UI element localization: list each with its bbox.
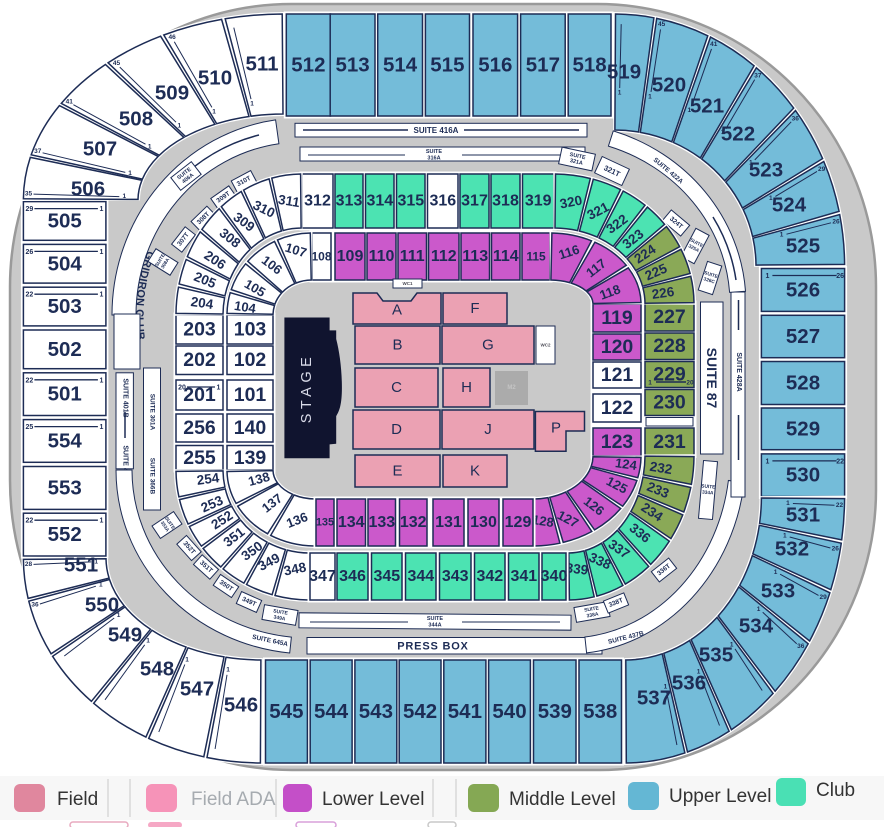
svg-text:20: 20 (178, 385, 186, 392)
svg-text:528: 528 (786, 372, 820, 395)
svg-text:139: 139 (234, 447, 267, 469)
svg-text:541: 541 (448, 700, 482, 723)
svg-text:B: B (392, 337, 402, 354)
svg-text:504: 504 (48, 252, 83, 275)
svg-text:26: 26 (832, 218, 840, 225)
svg-text:1: 1 (122, 193, 126, 200)
svg-text:SUITE: SUITE (426, 149, 443, 155)
svg-text:129: 129 (505, 514, 532, 531)
svg-text:41: 41 (66, 98, 74, 105)
svg-text:341: 341 (510, 568, 537, 585)
svg-text:37: 37 (34, 148, 42, 155)
svg-text:20: 20 (686, 380, 694, 387)
svg-text:130: 130 (470, 514, 497, 531)
svg-text:319: 319 (525, 193, 552, 210)
svg-text:347: 347 (309, 568, 336, 585)
svg-text:26: 26 (832, 546, 840, 553)
svg-text:121: 121 (601, 364, 634, 386)
svg-text:204: 204 (190, 294, 215, 312)
svg-text:A: A (392, 302, 402, 319)
svg-text:113: 113 (462, 248, 488, 265)
svg-text:109: 109 (337, 248, 364, 265)
svg-text:1: 1 (185, 657, 189, 664)
svg-text:133: 133 (368, 514, 395, 531)
svg-text:1: 1 (765, 458, 769, 465)
svg-text:131: 131 (435, 514, 462, 531)
svg-text:41: 41 (710, 41, 718, 48)
svg-text:228: 228 (653, 335, 686, 357)
svg-text:SUITE 87: SUITE 87 (704, 348, 720, 409)
svg-text:227: 227 (653, 306, 686, 328)
svg-text:314: 314 (366, 193, 393, 210)
svg-text:538: 538 (583, 700, 617, 723)
svg-text:501: 501 (48, 383, 82, 406)
svg-text:1: 1 (148, 143, 152, 150)
svg-text:542: 542 (403, 700, 437, 723)
svg-text:SUITE 401B: SUITE 401B (122, 378, 129, 417)
svg-text:535: 535 (699, 644, 733, 667)
svg-text:Field: Field (57, 789, 98, 810)
svg-text:SUITE 366B: SUITE 366B (149, 458, 156, 495)
svg-text:513: 513 (335, 54, 369, 77)
svg-text:1: 1 (212, 108, 216, 115)
svg-text:Field ADA: Field ADA (191, 789, 276, 810)
svg-text:545: 545 (269, 700, 303, 723)
svg-text:37: 37 (754, 72, 762, 79)
svg-text:344: 344 (407, 568, 434, 585)
svg-text:122: 122 (601, 397, 634, 419)
svg-text:112: 112 (431, 248, 457, 265)
svg-text:SUITE 301A: SUITE 301A (149, 394, 156, 431)
svg-text:519: 519 (607, 61, 641, 84)
svg-text:1: 1 (177, 123, 181, 130)
svg-text:1: 1 (99, 518, 103, 525)
svg-text:29: 29 (26, 206, 34, 213)
svg-text:G: G (482, 337, 494, 354)
svg-text:29: 29 (818, 166, 826, 173)
svg-text:530: 530 (786, 464, 820, 487)
svg-text:316A: 316A (427, 156, 440, 162)
svg-text:203: 203 (183, 319, 216, 341)
svg-text:1: 1 (783, 533, 787, 540)
svg-text:1: 1 (648, 93, 652, 100)
svg-text:25: 25 (26, 424, 34, 431)
svg-text:36: 36 (31, 602, 39, 609)
svg-text:312: 312 (304, 193, 331, 210)
svg-text:514: 514 (383, 54, 418, 77)
svg-text:26: 26 (836, 273, 844, 280)
svg-text:523: 523 (749, 159, 783, 182)
svg-text:1: 1 (721, 129, 725, 136)
svg-text:1: 1 (687, 107, 691, 114)
svg-text:1: 1 (664, 683, 668, 690)
svg-text:518: 518 (572, 54, 606, 77)
svg-text:529: 529 (786, 417, 820, 440)
svg-text:29: 29 (819, 594, 827, 601)
svg-text:340: 340 (541, 568, 568, 585)
svg-text:22: 22 (26, 292, 34, 299)
svg-text:M2: M2 (507, 385, 516, 391)
svg-text:548: 548 (140, 658, 174, 681)
svg-text:543: 543 (359, 700, 393, 723)
svg-text:111: 111 (400, 248, 425, 265)
svg-text:342: 342 (476, 568, 503, 585)
svg-text:135: 135 (316, 517, 334, 529)
svg-text:E: E (392, 463, 402, 480)
svg-text:1: 1 (765, 273, 769, 280)
svg-text:1: 1 (697, 668, 701, 675)
svg-text:533: 533 (761, 580, 795, 603)
svg-text:35: 35 (25, 191, 33, 198)
svg-text:1: 1 (128, 170, 132, 177)
svg-text:345: 345 (373, 568, 400, 585)
svg-text:1: 1 (648, 380, 652, 387)
svg-text:36: 36 (797, 643, 805, 650)
svg-text:1: 1 (757, 606, 761, 613)
svg-text:1: 1 (774, 569, 778, 576)
svg-text:1: 1 (769, 195, 773, 202)
svg-text:WC2: WC2 (541, 343, 551, 348)
svg-text:SUITE 416A: SUITE 416A (414, 126, 459, 135)
svg-text:108: 108 (311, 250, 331, 264)
svg-text:F: F (470, 300, 479, 317)
svg-text:26: 26 (26, 249, 34, 256)
svg-text:521: 521 (690, 95, 724, 118)
svg-text:46: 46 (168, 34, 176, 41)
svg-text:119: 119 (601, 307, 633, 329)
svg-text:526: 526 (786, 278, 820, 301)
svg-text:WC1: WC1 (403, 281, 413, 286)
svg-text:1: 1 (780, 232, 784, 239)
svg-text:Middle Level: Middle Level (509, 789, 616, 810)
svg-text:507: 507 (83, 138, 117, 161)
svg-text:1: 1 (117, 612, 121, 619)
svg-text:255: 255 (183, 447, 216, 469)
svg-text:508: 508 (119, 108, 153, 131)
svg-text:552: 552 (48, 523, 82, 546)
svg-text:346: 346 (339, 568, 366, 585)
svg-text:202: 202 (183, 349, 216, 371)
svg-text:511: 511 (245, 53, 278, 76)
svg-text:22: 22 (26, 518, 34, 525)
svg-text:334A: 334A (702, 490, 714, 497)
svg-text:522: 522 (721, 123, 755, 146)
svg-text:344A: 344A (428, 623, 441, 629)
svg-text:H: H (461, 379, 472, 396)
svg-text:1: 1 (99, 206, 103, 213)
svg-text:549: 549 (108, 624, 142, 647)
svg-text:554: 554 (48, 430, 83, 453)
svg-text:343: 343 (442, 568, 469, 585)
svg-text:546: 546 (224, 694, 258, 717)
svg-text:1: 1 (99, 424, 103, 431)
svg-text:231: 231 (653, 431, 686, 453)
svg-text:115: 115 (526, 250, 546, 264)
svg-text:134: 134 (338, 514, 365, 531)
svg-text:339: 339 (565, 560, 589, 578)
svg-text:36: 36 (792, 115, 800, 122)
svg-text:506: 506 (71, 178, 105, 201)
svg-text:550: 550 (85, 594, 119, 617)
svg-text:516: 516 (478, 54, 512, 77)
svg-text:Lower Level: Lower Level (322, 789, 424, 810)
svg-text:D: D (391, 421, 402, 438)
svg-text:317: 317 (461, 193, 488, 210)
svg-text:510: 510 (198, 67, 232, 90)
svg-text:316: 316 (429, 193, 456, 210)
svg-text:502: 502 (48, 338, 82, 361)
svg-text:132: 132 (400, 514, 427, 531)
svg-text:45: 45 (113, 60, 121, 67)
svg-text:1: 1 (99, 292, 103, 299)
svg-text:553: 553 (48, 476, 82, 499)
svg-text:527: 527 (786, 325, 820, 348)
svg-text:28: 28 (25, 561, 33, 568)
svg-text:313: 313 (336, 193, 363, 210)
svg-text:515: 515 (430, 54, 464, 77)
svg-text:K: K (470, 463, 480, 480)
svg-text:140: 140 (234, 417, 267, 439)
svg-text:114: 114 (493, 248, 519, 265)
svg-text:22: 22 (836, 502, 844, 509)
svg-text:531: 531 (786, 504, 820, 527)
svg-text:547: 547 (180, 678, 214, 701)
svg-text:101: 101 (234, 384, 267, 406)
svg-text:22: 22 (26, 377, 34, 384)
svg-text:1: 1 (786, 500, 790, 507)
svg-text:551: 551 (64, 554, 98, 577)
svg-text:PRESS BOX: PRESS BOX (397, 641, 468, 653)
svg-text:120: 120 (601, 336, 634, 358)
svg-text:1: 1 (94, 558, 98, 565)
svg-text:318: 318 (492, 193, 519, 210)
svg-text:1: 1 (99, 249, 103, 256)
svg-text:230: 230 (653, 392, 686, 414)
svg-text:536: 536 (672, 672, 706, 695)
svg-text:1: 1 (618, 90, 622, 97)
svg-text:124: 124 (614, 455, 638, 473)
svg-text:1: 1 (99, 377, 103, 384)
svg-text:SUITE: SUITE (427, 616, 444, 622)
svg-text:C: C (391, 379, 402, 396)
svg-text:Upper Level: Upper Level (669, 786, 771, 807)
svg-text:503: 503 (48, 295, 82, 318)
svg-text:315: 315 (397, 193, 424, 210)
svg-text:45: 45 (658, 21, 666, 28)
svg-text:123: 123 (601, 431, 634, 453)
svg-text:540: 540 (492, 700, 526, 723)
svg-text:110: 110 (369, 248, 395, 265)
svg-text:SUITE 428A: SUITE 428A (735, 352, 742, 391)
svg-text:505: 505 (48, 209, 82, 232)
svg-text:STAGE: STAGE (299, 353, 315, 424)
svg-text:509: 509 (155, 82, 189, 105)
svg-text:520: 520 (652, 74, 686, 97)
svg-text:1: 1 (250, 101, 254, 108)
svg-text:256: 256 (183, 417, 216, 439)
svg-text:544: 544 (314, 700, 349, 723)
svg-text:103: 103 (234, 319, 267, 341)
svg-text:226: 226 (651, 284, 676, 302)
svg-text:517: 517 (526, 54, 560, 77)
svg-text:J: J (484, 421, 492, 438)
svg-text:1: 1 (146, 638, 150, 645)
svg-text:1: 1 (226, 666, 230, 673)
svg-text:254: 254 (196, 470, 221, 488)
svg-text:1: 1 (217, 385, 221, 392)
svg-text:P: P (551, 420, 561, 437)
svg-text:102: 102 (234, 349, 267, 371)
svg-text:525: 525 (786, 235, 820, 258)
svg-text:Club: Club (816, 780, 855, 801)
svg-text:1: 1 (99, 582, 103, 589)
svg-text:1: 1 (730, 642, 734, 649)
svg-text:512: 512 (291, 54, 325, 77)
svg-text:1: 1 (749, 159, 753, 166)
svg-text:524: 524 (772, 194, 807, 217)
svg-text:22: 22 (836, 458, 844, 465)
svg-text:539: 539 (538, 700, 572, 723)
